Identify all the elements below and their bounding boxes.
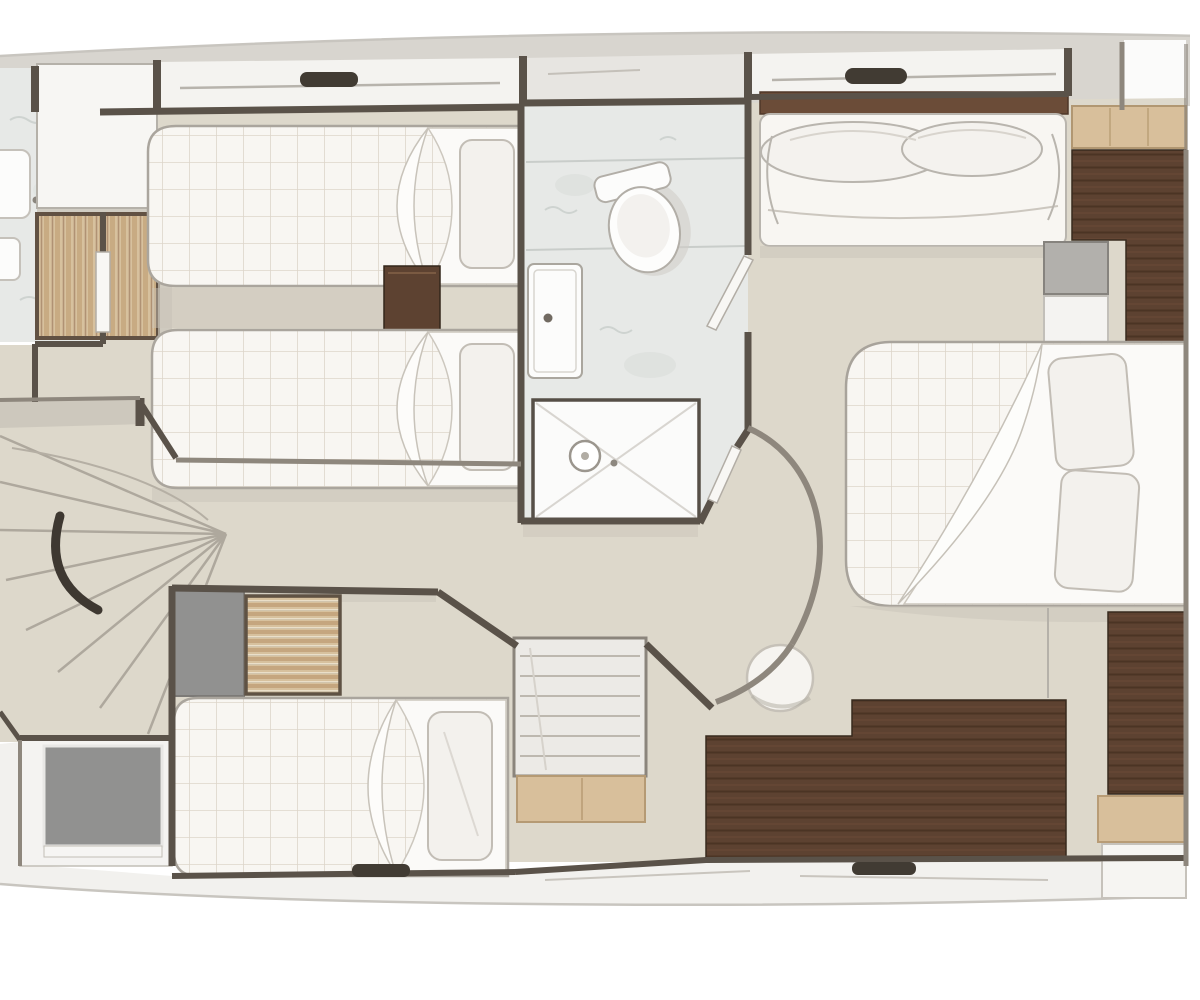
floor-plan: [0, 0, 1200, 1000]
nightstand: [384, 266, 440, 330]
shower-drain-center: [581, 452, 589, 460]
right-margin: [1190, 28, 1200, 908]
single-bed-1: [148, 126, 521, 286]
master-bed: [846, 342, 1186, 606]
deck-hatch: [352, 864, 410, 877]
gray-cabinet: [172, 590, 244, 696]
white-side-box: [1044, 296, 1108, 346]
berth-edge: [44, 846, 162, 857]
side-washbasin: [0, 150, 30, 218]
berth: [44, 746, 162, 846]
marble-patch: [555, 174, 595, 196]
pillow: [428, 712, 492, 860]
right-white-cabinet: [1102, 844, 1186, 898]
right-wood-column: [1108, 612, 1186, 794]
shower-control: [611, 460, 618, 467]
hull-window-band-bath: [523, 54, 748, 104]
faucet-dot: [544, 314, 553, 323]
marble-patch: [624, 352, 676, 378]
side-room: [20, 738, 172, 866]
gray-side-box: [1044, 242, 1108, 294]
floor-plan-page: [0, 0, 1200, 1000]
sofa-shadow: [760, 246, 1068, 258]
under-bed-shadow: [152, 488, 522, 502]
side-fixture: [0, 238, 20, 280]
deck-hatch: [852, 862, 916, 875]
beds-gap-shadow: [152, 288, 392, 328]
forward-cabinet: [37, 64, 157, 208]
wardrobe: [246, 596, 340, 694]
guest-bed: [174, 698, 508, 876]
shower: [533, 400, 699, 520]
pillow: [1054, 469, 1140, 592]
pillow: [1047, 353, 1134, 471]
side-bathroom-door: [96, 252, 110, 332]
bench: [517, 776, 645, 822]
right-tan-cabinet: [1098, 796, 1186, 842]
deck-hatch: [300, 72, 358, 87]
wood-shelf-top-right: [1072, 106, 1186, 148]
bathroom-south-shadow: [523, 525, 698, 537]
pillow: [460, 344, 514, 470]
pillow: [460, 140, 514, 268]
vanity-washbasin: [528, 264, 582, 378]
sofa: [760, 114, 1066, 246]
shelf-unit: [514, 638, 646, 776]
deck-hatch: [845, 68, 907, 84]
